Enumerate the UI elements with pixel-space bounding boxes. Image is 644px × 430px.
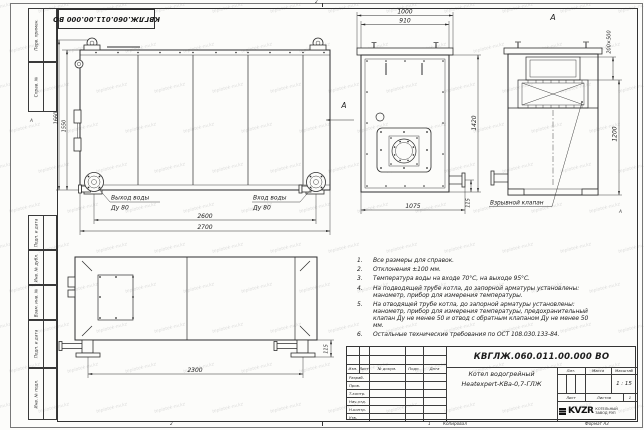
- side-lug: [75, 60, 83, 68]
- dim-height: 1420: [471, 115, 478, 130]
- product-name-line2: Heatexpert-КВа-0,7-ГЛЖ: [462, 380, 542, 390]
- product-name-line1: Котел водогрейный: [468, 370, 534, 380]
- divider: [43, 369, 44, 419]
- divider: [43, 9, 44, 61]
- rear-dimensions: 200×500 1200: [580, 30, 622, 195]
- note-item: 1.Все размеры для справок.: [352, 257, 590, 264]
- note-number: 1.: [352, 257, 373, 264]
- valve-callout: Взрывной клапан: [489, 101, 583, 206]
- note-number: 3.: [352, 275, 373, 282]
- dim-height: 1200: [612, 126, 619, 141]
- zone-mark-bottom-left: 2: [170, 421, 173, 426]
- kvzr-logo-text: KVZR: [568, 406, 593, 416]
- note-number: 6.: [352, 331, 373, 338]
- note-text: Остальные технические требования по ОСТ …: [373, 331, 590, 338]
- note-number: 5.: [352, 301, 373, 329]
- margin-label: Справ. №: [34, 77, 39, 97]
- side-body: [74, 38, 330, 194]
- sign-row-razrab: Разраб.: [347, 373, 369, 381]
- grid-line: [566, 374, 567, 393]
- top-bolts: [95, 52, 325, 54]
- note-text: Отклонения ±100 мм.: [373, 266, 590, 273]
- note-item: 5.На отводящей трубе котла, до запорной …: [352, 301, 590, 329]
- grid-line: [369, 347, 370, 421]
- grid-line: [575, 374, 576, 393]
- margin-label: Взам. инв. №: [34, 288, 39, 316]
- plan-body: [68, 257, 317, 340]
- technical-notes: 1.Все размеры для справок. 2.Отклонения …: [352, 257, 590, 340]
- mass-label: Масса: [585, 367, 611, 374]
- margin-label: Инв. № дубл.: [34, 253, 39, 282]
- rev-col-izm: Изм.: [347, 364, 359, 373]
- dim-width-outer: 1000: [397, 9, 412, 16]
- note-item: 3.Температура воды на входе 70°С, на вых…: [352, 275, 590, 282]
- note-number: 4.: [352, 285, 373, 299]
- outlet-label: Выход воды: [111, 195, 149, 202]
- view-side-elevation: 1660 1550 2600 2700: [48, 28, 358, 240]
- front-dimensions-top: 1000 910: [357, 9, 453, 49]
- note-text: Все размеры для справок.: [373, 257, 590, 264]
- dim-width-inner: 910: [399, 18, 411, 25]
- note-text: Температура воды на входе 70°С, на выход…: [373, 275, 590, 282]
- zone-mark-left: А: [30, 118, 33, 123]
- lifting-lug-right: [310, 38, 326, 50]
- valve-label: Взрывной клапан: [490, 201, 544, 207]
- zone-mark-bottom-right: 1: [428, 421, 431, 426]
- view-a-letter: А: [340, 101, 346, 110]
- note-item: 2.Отклонения ±100 мм.: [352, 266, 590, 273]
- doc-number-stamp-rotated: КВГЛЖ.060.011.00.000 ВО: [58, 9, 155, 29]
- note-text: На отводящей трубе котла, до запорной ар…: [373, 301, 590, 329]
- sign-row-nkontr: Н.контр.: [347, 405, 369, 413]
- divider: [43, 286, 44, 319]
- grid-line: [405, 347, 406, 421]
- side-dimensions: 1660 1550 2600 2700: [54, 40, 331, 235]
- drawing-sheet: teplotek-nv.kzteplotek-nv.kzteplotek-nv.…: [0, 0, 644, 430]
- dim-leg: 115: [466, 198, 472, 208]
- company-logo-block: KVZR КОТЕЛЬНЫЙ ЗАВОД РЭП: [559, 402, 635, 420]
- sight-hole: [376, 113, 384, 121]
- front-pipe-stub: [449, 173, 465, 187]
- rear-pipe-stub: [491, 171, 508, 185]
- plan-hatch: [98, 275, 134, 320]
- rev-col-docnum: № докум.: [369, 364, 405, 373]
- rear-base: [508, 189, 598, 195]
- note-text: На подводящей трубе котла, до запорной а…: [373, 285, 590, 299]
- sign-row-utv: Утв.: [347, 413, 369, 421]
- copied-label: Копировал: [443, 421, 467, 426]
- company-line2: ЗАВОД РЭП: [595, 411, 617, 415]
- note-item: 4.На подводящей трубе котла, до запорной…: [352, 285, 590, 299]
- plan-legs: [59, 340, 315, 357]
- dim-height-inner: 1550: [62, 120, 68, 133]
- valve-bolt-ticks: [528, 80, 582, 108]
- scale-value: 1 : 15: [611, 374, 637, 393]
- dim-width-outer: 2700: [197, 224, 212, 231]
- sign-row-prov: Пров.: [347, 381, 369, 389]
- margin-label: Подп. и дата: [34, 330, 39, 359]
- sign-row-tkontr: Т.контр.: [347, 389, 369, 397]
- view-plan: 2300 115: [50, 245, 350, 390]
- rev-col-podp: Подп.: [405, 364, 423, 373]
- scale-label: Масштаб: [611, 367, 637, 374]
- grid-line: [423, 347, 424, 421]
- sheet-label: Лист: [557, 393, 585, 401]
- fold-tick-top: [322, 3, 323, 7]
- title-block: КВГЛЖ.060.011.00.000 ВО Изм. Лист № доку…: [346, 346, 636, 420]
- note-number: 2.: [352, 266, 373, 273]
- product-name: Котел водогрейный Heatexpert-КВа-0,7-ГЛЖ: [446, 367, 557, 424]
- doc-number: КВГЛЖ.060.011.00.000 ВО: [446, 347, 637, 367]
- dim-height-outer: 1660: [54, 112, 60, 125]
- margin-label: Инв. № подл.: [34, 380, 39, 409]
- lit-label: Лит.: [557, 367, 585, 374]
- inlet-label: Вход воды: [253, 195, 287, 202]
- dim-hatch: 200×500: [607, 30, 613, 53]
- rev-col-data: Дата: [423, 364, 446, 373]
- zone-mark-top: 2: [315, 0, 318, 4]
- sheets-label: Листов: [585, 393, 623, 401]
- format-label: Формат А3: [585, 421, 609, 426]
- view-title-a: А: [549, 13, 555, 22]
- view-rear-a: А: [482, 4, 640, 225]
- kvzr-emblem-icon: [559, 408, 566, 415]
- sign-row-nachotd: Нач.отд.: [347, 397, 369, 405]
- dim-width-inner: 2600: [197, 213, 212, 220]
- grid-line: [347, 355, 446, 356]
- dim-bottom: 1075: [405, 203, 420, 210]
- explosion-valve: [518, 80, 588, 108]
- burner-plate: [377, 128, 431, 172]
- inlet-dn: Ду 80: [252, 205, 271, 212]
- note-item: 6.Остальные технические требования по ОС…: [352, 331, 590, 338]
- divider: [43, 321, 44, 367]
- sheets-value: 1: [623, 393, 637, 401]
- company-name: КОТЕЛЬНЫЙ ЗАВОД РЭП: [595, 407, 617, 415]
- divider: [43, 216, 44, 249]
- outlet-callout: Выход воды Ду 80: [98, 188, 160, 212]
- margin-label: Подп. и дата: [34, 218, 39, 247]
- divider: [43, 63, 44, 111]
- dim-leg: 115: [324, 344, 330, 354]
- dim-length: 2300: [187, 367, 202, 374]
- margin-label: Перв. примен.: [34, 19, 39, 50]
- divider: [43, 251, 44, 284]
- outlet-dn: Ду 80: [110, 205, 129, 212]
- view-front: 1000 910: [352, 6, 482, 231]
- fold-tick-bottom: [322, 421, 323, 426]
- rev-col-list: Лист: [359, 364, 369, 373]
- doc-number-text: КВГЛЖ.060.011.00.000 ВО: [53, 15, 160, 23]
